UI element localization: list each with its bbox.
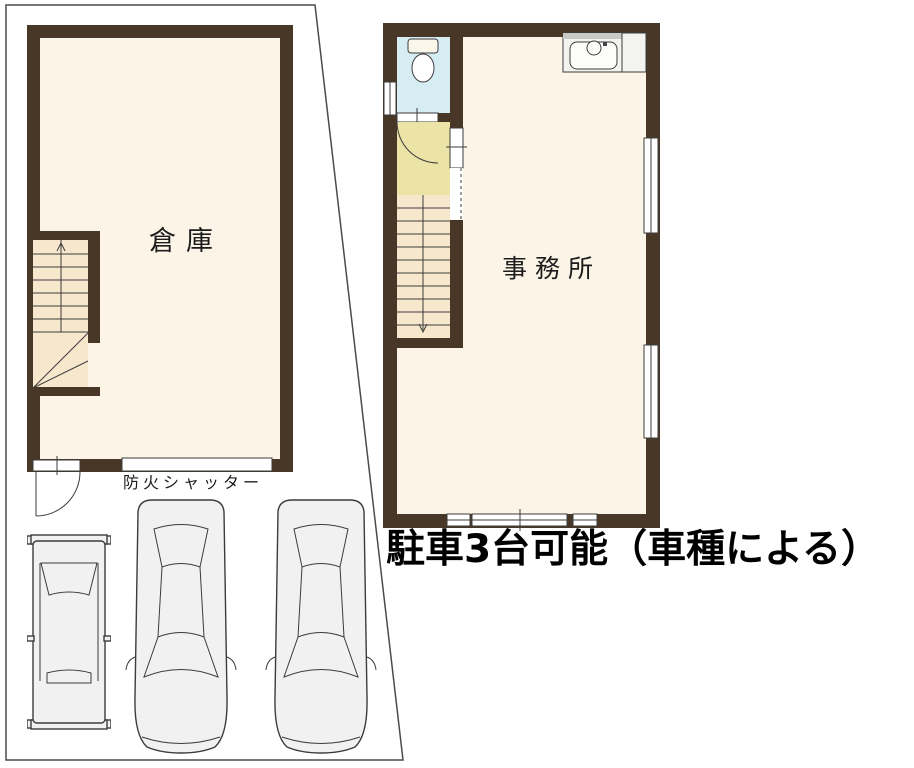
warehouse-building bbox=[27, 25, 293, 516]
stair-landing bbox=[397, 122, 450, 195]
parking-note: 駐車3台可能（車種による） bbox=[386, 528, 880, 573]
car-sedan-1 bbox=[126, 500, 236, 753]
kitchen-sink-icon bbox=[563, 33, 646, 72]
floorplan-drawing bbox=[0, 0, 914, 768]
warehouse-entry-door bbox=[33, 456, 80, 516]
window-left bbox=[384, 82, 396, 115]
window-right-lower bbox=[644, 345, 658, 438]
car-sedan-2 bbox=[266, 500, 376, 753]
swing-door-arc-icon bbox=[36, 472, 80, 516]
window-right-upper bbox=[644, 138, 658, 233]
warehouse-label: 倉庫 bbox=[149, 226, 223, 257]
fire-shutter-opening bbox=[122, 458, 272, 471]
car-van bbox=[27, 535, 111, 729]
floorplan-canvas: 倉庫 事務所 防火シャッター 駐車3台可能（車種による） bbox=[0, 0, 914, 768]
parking-cars bbox=[27, 500, 376, 753]
fire-shutter-label: 防火シャッター bbox=[123, 474, 263, 492]
office-label: 事務所 bbox=[502, 255, 601, 284]
